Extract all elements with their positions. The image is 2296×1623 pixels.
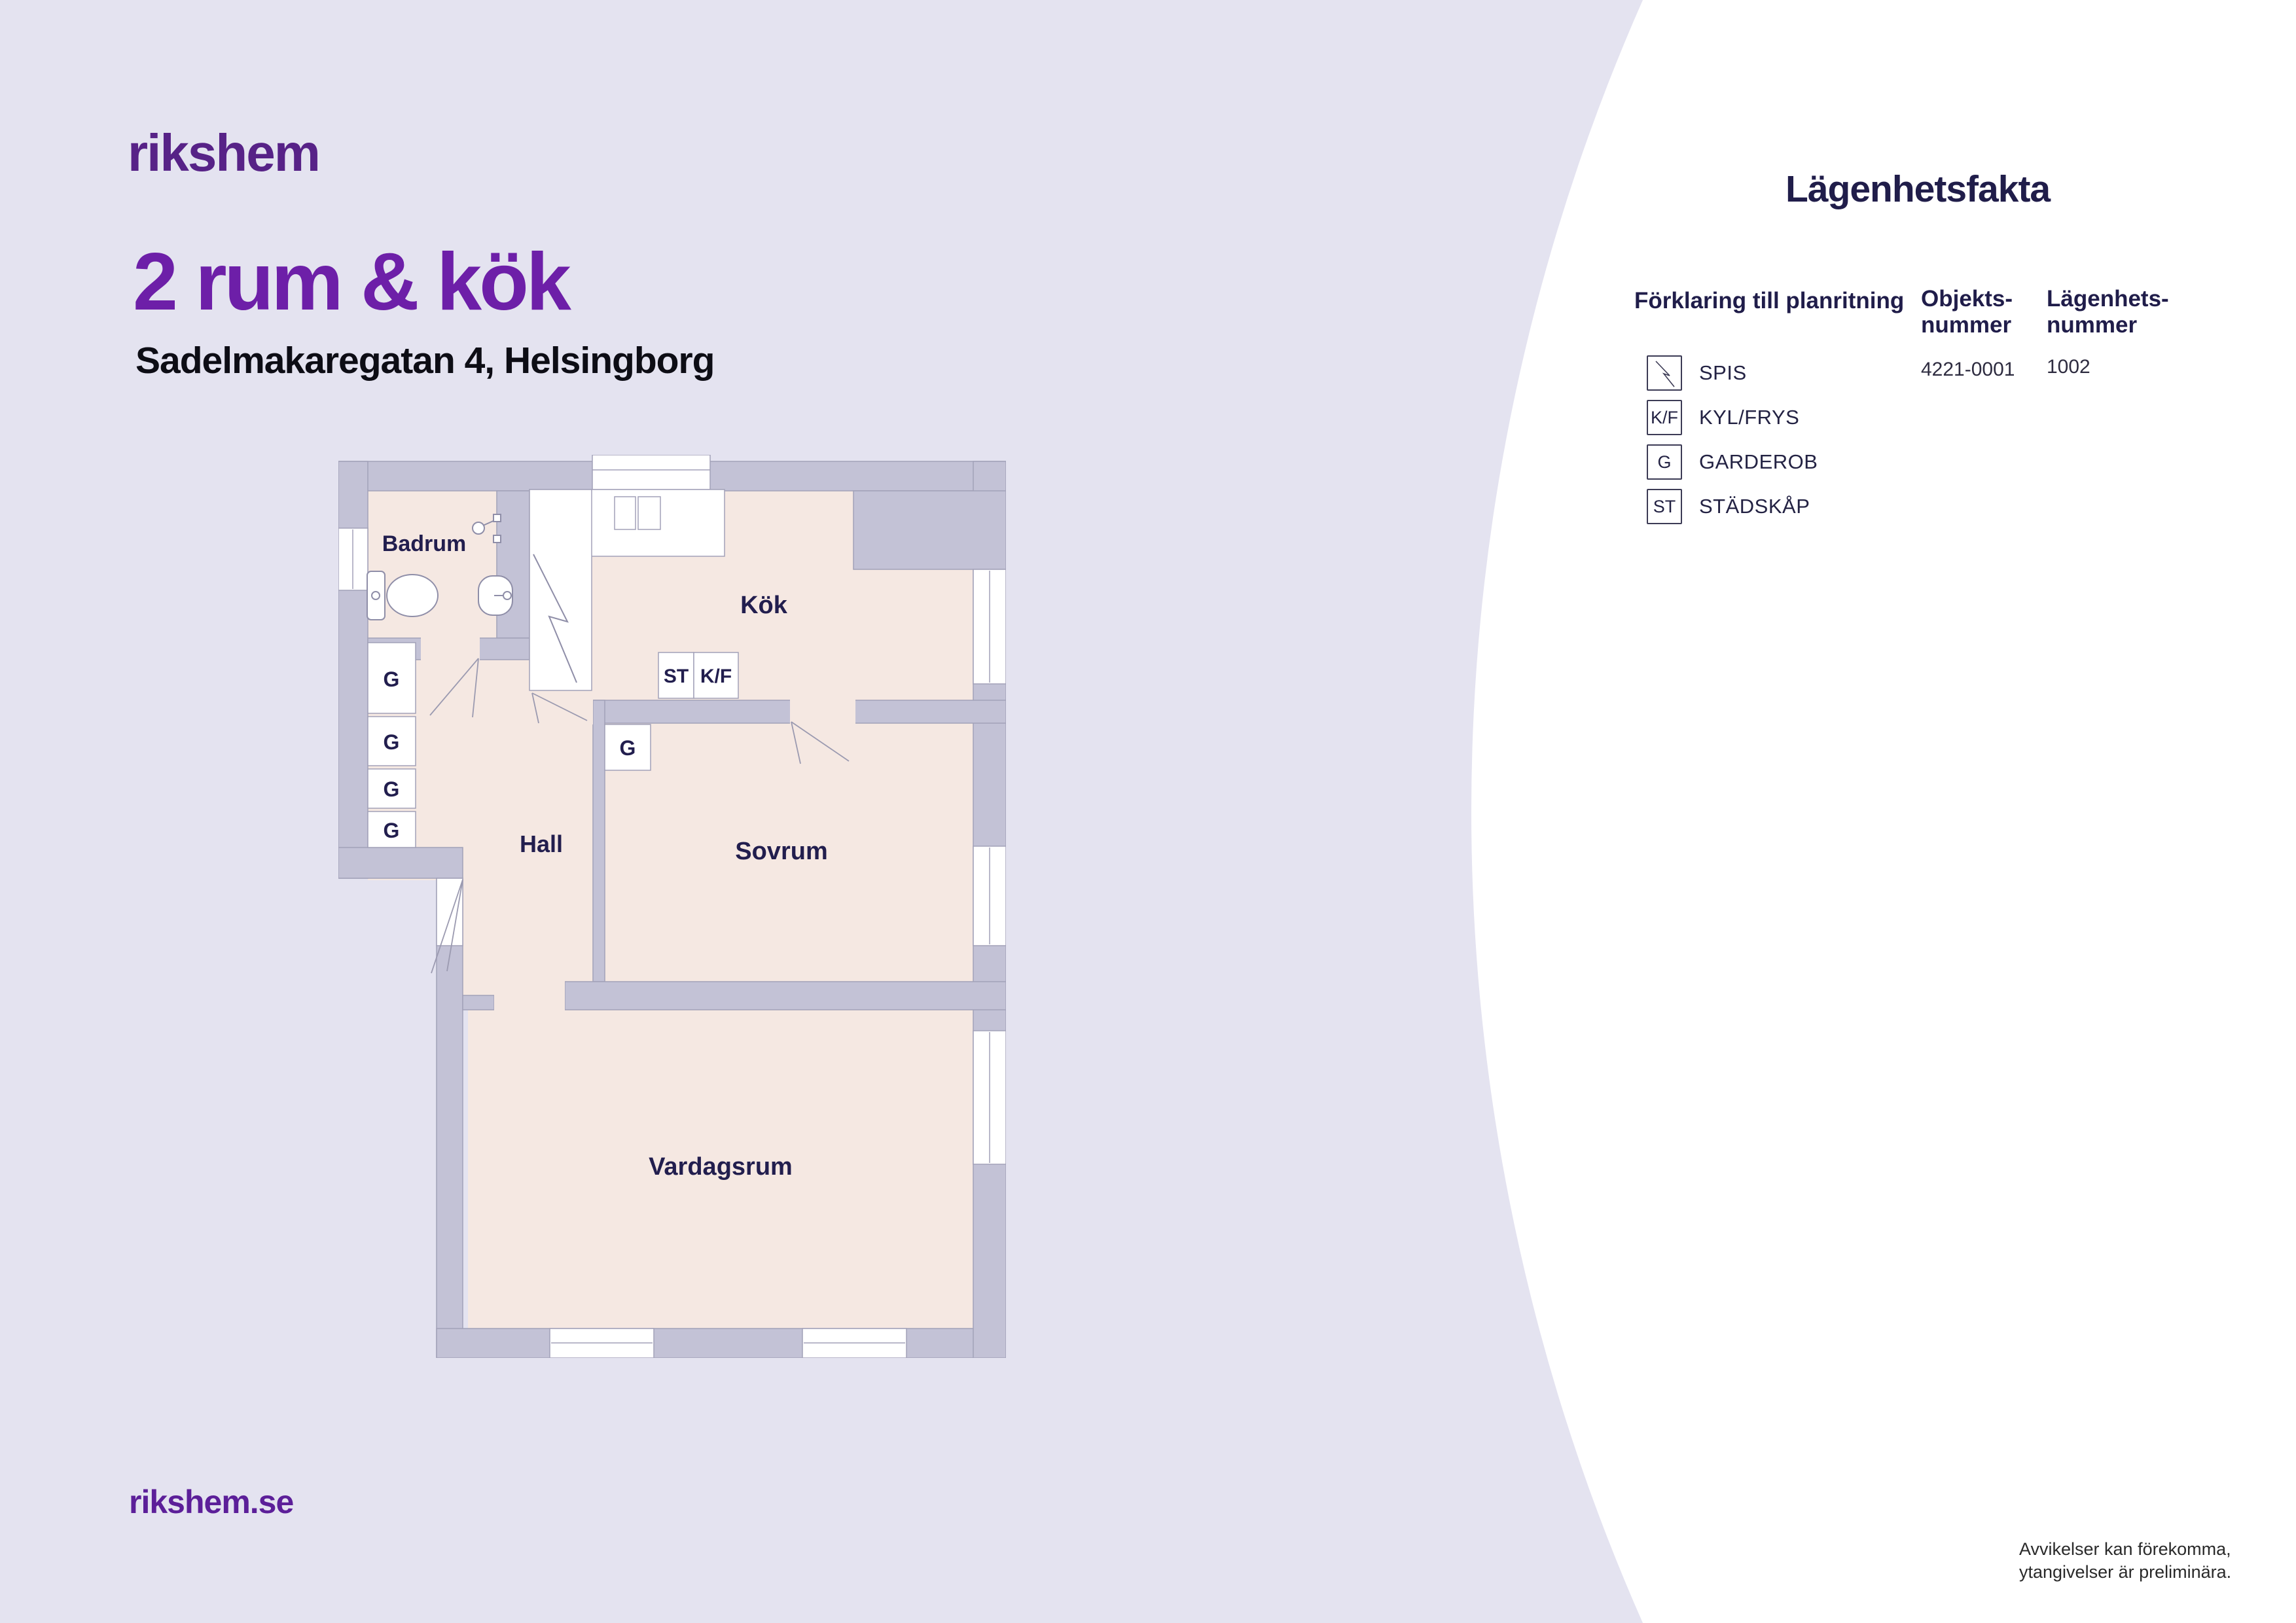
- wardrobe-marker: G: [384, 777, 400, 801]
- vent-shaft: [592, 455, 710, 490]
- wardrobe-marker-bedroom: G: [620, 736, 636, 760]
- faucet-icon: [503, 592, 511, 599]
- apartment-number-label: Lägenhets- nummer: [2047, 286, 2169, 338]
- room-label-kitchen: Kök: [740, 592, 788, 619]
- entrance-opening: [437, 878, 463, 946]
- spis-icon: [1647, 355, 1682, 391]
- rikshem-logo: rikshem: [128, 123, 319, 183]
- legend-label: GARDEROB: [1699, 450, 1818, 474]
- plan-legend: SPIS K/F KYL/FRYS G GARDEROB ST STÄDSKÅP: [1647, 355, 1818, 524]
- legend-row-garderob: G GARDEROB: [1647, 444, 1818, 480]
- toilet-bowl-icon: [387, 575, 438, 616]
- legend-row-spis: SPIS: [1647, 355, 1818, 391]
- room-label-bedroom: Sovrum: [735, 838, 827, 865]
- legend-row-stadskap: ST STÄDSKÅP: [1647, 489, 1818, 524]
- floorplan-drawing: Badrum Kök Hall Sovrum Vardagsrum G G G …: [338, 455, 1006, 1358]
- wardrobe-marker: G: [384, 819, 400, 842]
- object-number-label: Objekts- nummer: [1921, 286, 2015, 338]
- legend-label: SPIS: [1699, 361, 1747, 385]
- legend-row-kylfrys: K/F KYL/FRYS: [1647, 400, 1818, 435]
- object-number-value: 4221-0001: [1921, 357, 2015, 383]
- cleaning-cabinet-marker: ST: [664, 666, 689, 687]
- kitchen-sink-basin: [615, 497, 636, 529]
- cleaning-cabinet-symbol: ST: [1647, 489, 1682, 524]
- shower-head-icon: [473, 522, 484, 534]
- legend-label: KYL/FRYS: [1699, 406, 1799, 429]
- disclaimer-text: Avvikelser kan förekomma, ytangivelser ä…: [2019, 1538, 2231, 1584]
- facts-title: Lägenhetsfakta: [1785, 168, 2050, 211]
- white-curve-background: [1471, 0, 2296, 1623]
- kitchen-sink-basin: [638, 497, 660, 529]
- fridge-freezer-marker: K/F: [700, 666, 732, 687]
- wardrobe-marker: G: [384, 730, 400, 754]
- room-label-hall: Hall: [520, 830, 563, 857]
- legend-label: STÄDSKÅP: [1699, 495, 1810, 518]
- object-number-block: Objekts- nummer 4221-0001: [1921, 286, 2015, 383]
- toilet-tank-icon: [367, 571, 385, 620]
- website-link: rikshem.se: [129, 1483, 293, 1521]
- apartment-number-block: Lägenhets- nummer 1002: [2047, 286, 2169, 380]
- room-label-livingroom: Vardagsrum: [649, 1153, 793, 1181]
- address-subtitle: Sadelmakaregatan 4, Helsingborg: [135, 339, 714, 382]
- corridor-floor: [463, 877, 593, 996]
- legend-title: Förklaring till planritning: [1634, 288, 1904, 314]
- wardrobe-marker: G: [384, 668, 400, 691]
- kitchen-counter-column: [529, 490, 592, 690]
- room-label-bathroom: Badrum: [382, 531, 466, 556]
- apartment-number-value: 1002: [2047, 354, 2169, 380]
- wardrobe-symbol: G: [1647, 444, 1682, 480]
- fridge-freezer-symbol: K/F: [1647, 400, 1682, 435]
- page-title: 2 rum & kök: [133, 236, 569, 329]
- flyer-page: rikshem 2 rum & kök Sadelmakaregatan 4, …: [0, 0, 2296, 1623]
